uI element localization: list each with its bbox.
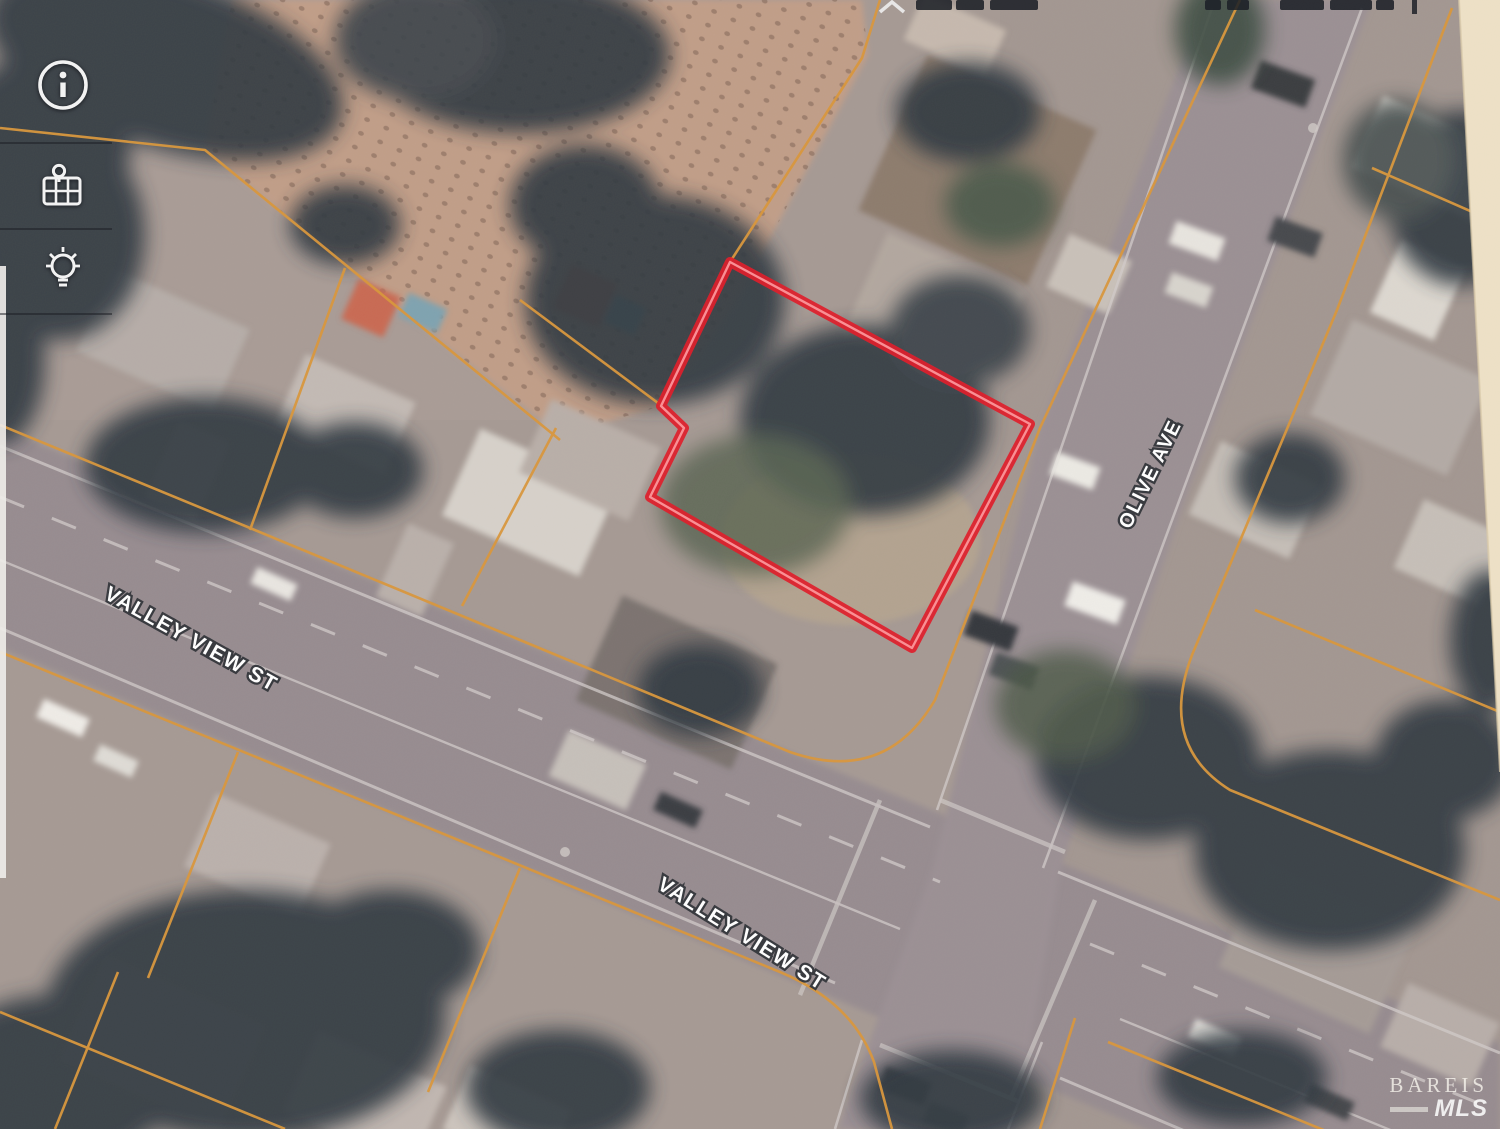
toolbar-divider xyxy=(0,228,112,230)
chevron-up-icon xyxy=(876,0,908,14)
aerial-map-canvas: VALLEY VIEW ST VALLEY VIEW ST OLIVE AVE xyxy=(0,0,1500,1129)
info-icon[interactable] xyxy=(36,58,90,112)
map-icon[interactable] xyxy=(38,162,86,210)
toolbar-divider xyxy=(0,313,112,315)
lightbulb-icon[interactable] xyxy=(40,244,86,300)
photo-margin-left xyxy=(0,266,6,878)
toolbar-divider xyxy=(0,142,112,144)
map-viewport[interactable]: VALLEY VIEW ST VALLEY VIEW ST OLIVE AVE xyxy=(0,0,1500,1129)
topbar-divider-stub xyxy=(1412,0,1417,14)
photo-grain xyxy=(0,0,1500,1129)
